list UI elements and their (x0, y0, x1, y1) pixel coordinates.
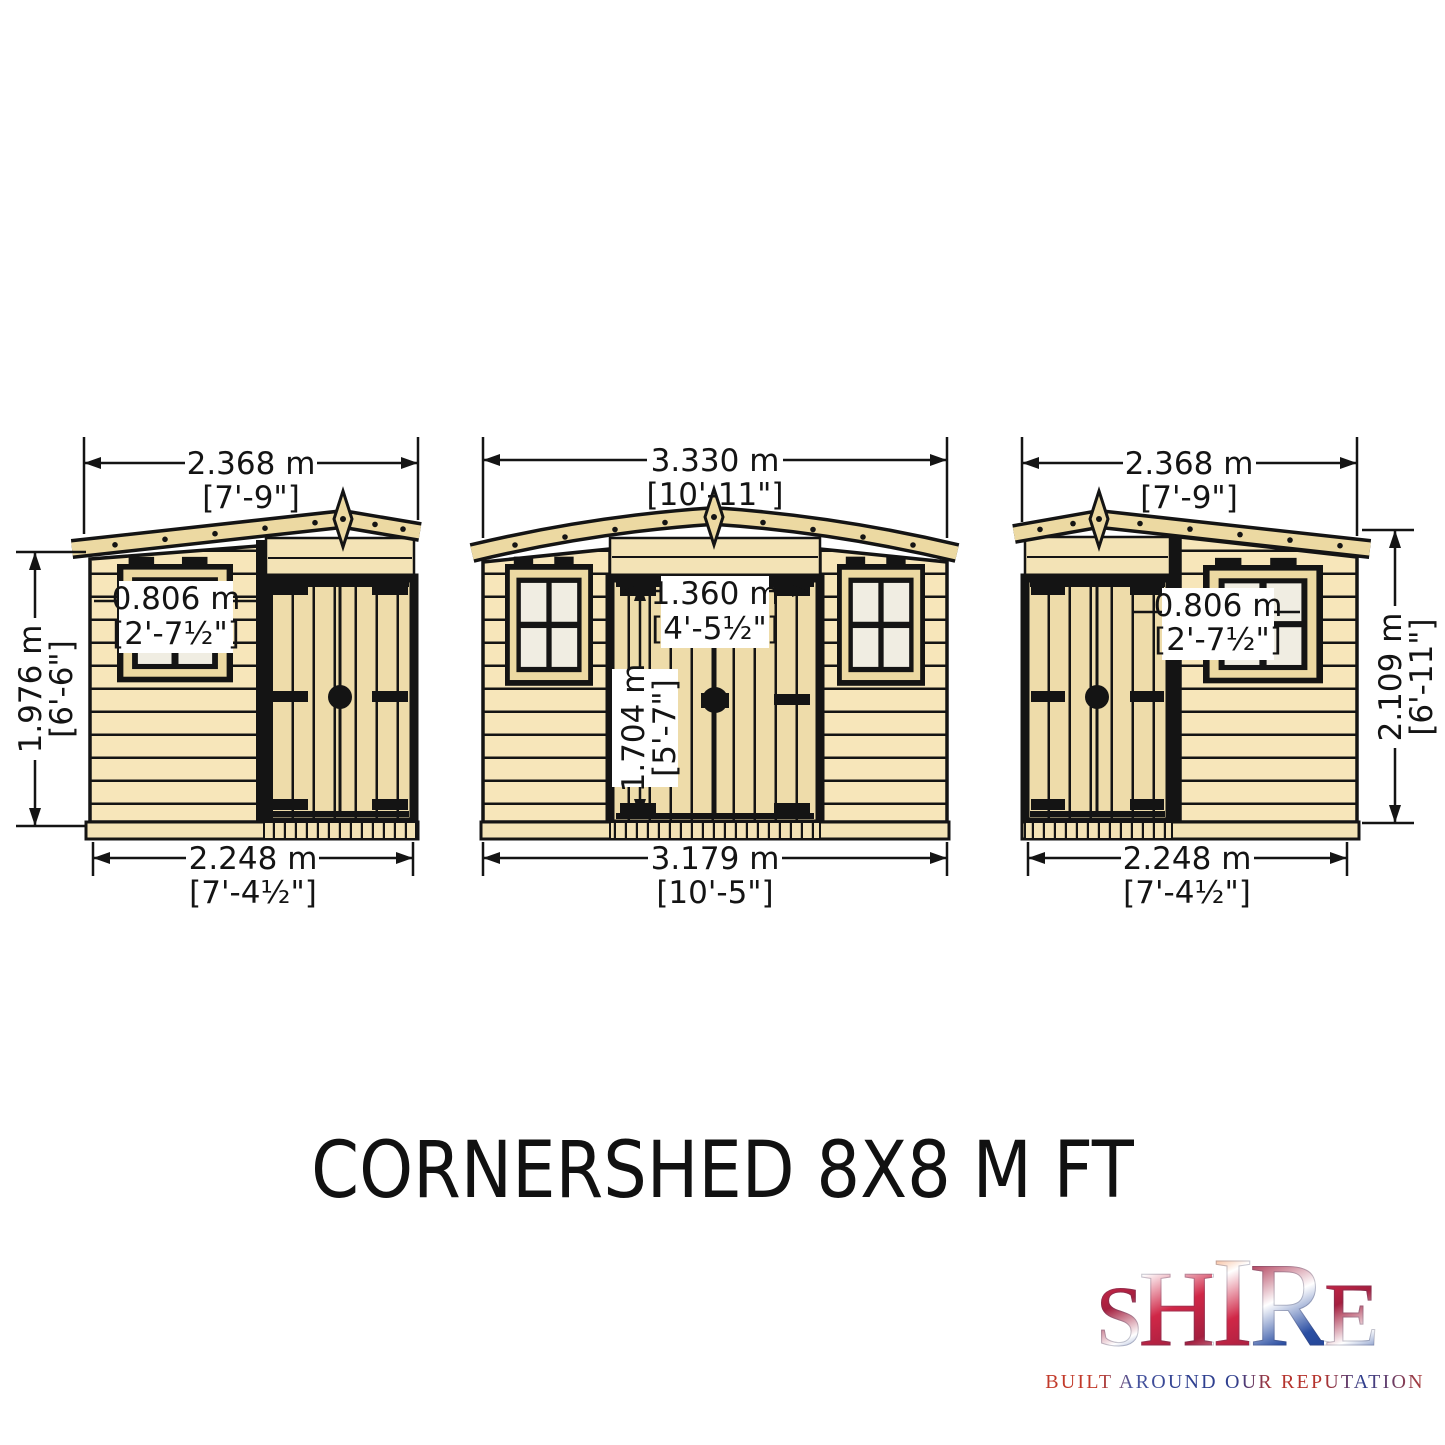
dimension-width-bottom: 2.248 m [7'-4½"] (93, 841, 413, 911)
logo-tagline: BUILT AROUND OUR REPUTATION (1036, 1371, 1434, 1394)
dimension-value-imperial: [10'-11"] (646, 477, 783, 513)
door-handle (1085, 685, 1109, 709)
dimension-value-metric: 1.360 m (651, 576, 780, 612)
page: { "title": "CORNERSHED 8X8 M FT", "color… (0, 0, 1445, 1445)
dimension-value-metric: 2.248 m (189, 841, 318, 877)
door-threshold (610, 822, 820, 839)
dimension-value-imperial: [2'-7½"] (112, 616, 240, 652)
view-front: 3.330 m [10'-11"] 1.360 m [4'-5½"] 1.704… (472, 437, 957, 911)
dimension-value-imperial: [7'-4½"] (189, 875, 317, 911)
dimension-window: 0.806 m [2'-7½"] (1134, 588, 1300, 660)
door-handle (702, 687, 728, 713)
dimension-value-imperial: [4'-5½"] (651, 611, 779, 647)
hinge (372, 799, 408, 810)
logo-letter: S (1096, 1273, 1139, 1359)
dimension-value-imperial: [6'-6"] (44, 640, 80, 738)
view-side-right: 2.368 m [7'-9"] 0.806 m [2'-7½"] 2.109 m… (1014, 437, 1440, 911)
dimension-value-imperial: [2'-7½"] (1154, 622, 1282, 658)
shire-logo-wordmark: SHIRE (1036, 1238, 1434, 1366)
dimension-value-imperial: [5'-7"] (647, 679, 683, 777)
dimension-height-left: 1.976 m [6'-6"] (10, 552, 86, 826)
dimension-value-imperial: [10'-5"] (656, 875, 773, 911)
hinge (774, 694, 810, 705)
dimension-width-bottom: 2.248 m [7'-4½"] (1028, 841, 1347, 911)
view-side-left: 2.368 m [7'-9"] 1.976 m [6'-6"] 0.806 m … (10, 437, 420, 911)
elevation-diagram: 2.368 m [7'-9"] 1.976 m [6'-6"] 0.806 m … (0, 0, 1445, 1445)
double-door (266, 578, 414, 822)
dimension-value-metric: 2.368 m (187, 446, 316, 482)
dimension-value-imperial: [6'-11"] (1404, 618, 1440, 735)
hinge (774, 803, 810, 814)
door-threshold (264, 822, 416, 839)
dimension-value-imperial: [7'-9"] (1140, 480, 1238, 516)
door-handle (328, 685, 352, 709)
four-pane-window (505, 557, 593, 686)
dimension-value-metric: 0.806 m (1154, 588, 1283, 624)
hinge (272, 691, 308, 702)
dimension-width-bottom: 3.179 m [10'-5"] (483, 841, 947, 911)
dimension-value-metric: 2.368 m (1125, 446, 1254, 482)
dimension-value-metric: 2.248 m (1123, 841, 1252, 877)
dimension-value-metric: 0.806 m (112, 581, 241, 617)
logo-letter: R (1249, 1245, 1324, 1365)
logo-letter: H (1139, 1256, 1212, 1364)
dimension-window: 0.806 m [2'-7½"] (94, 581, 258, 653)
hinge (1130, 691, 1164, 702)
double-door (1025, 578, 1170, 822)
shire-logo: SHIRE BUILT AROUND OUR REPUTATION (1036, 1238, 1434, 1394)
dimension-value-metric: 3.179 m (651, 841, 780, 877)
logo-letter: E (1324, 1271, 1374, 1361)
dimension-value-metric: 3.330 m (651, 443, 780, 479)
logo-letter: I (1212, 1238, 1250, 1366)
hinge (372, 691, 408, 702)
hinge (1031, 799, 1065, 810)
hinge (1130, 799, 1164, 810)
dimension-value-imperial: [7'-9"] (202, 480, 300, 516)
product-title: CORNERSHED 8X8 M FT (87, 1126, 1359, 1216)
hinge (272, 799, 308, 810)
hinge (1031, 691, 1065, 702)
dimension-value-imperial: [7'-4½"] (1123, 875, 1251, 911)
dimension-height-right: 2.109 m [6'-11"] (1362, 530, 1440, 823)
hinge (1031, 584, 1065, 595)
four-pane-window (837, 557, 925, 686)
hinge (272, 584, 308, 595)
hinge (372, 584, 408, 595)
door-threshold (1025, 822, 1172, 839)
